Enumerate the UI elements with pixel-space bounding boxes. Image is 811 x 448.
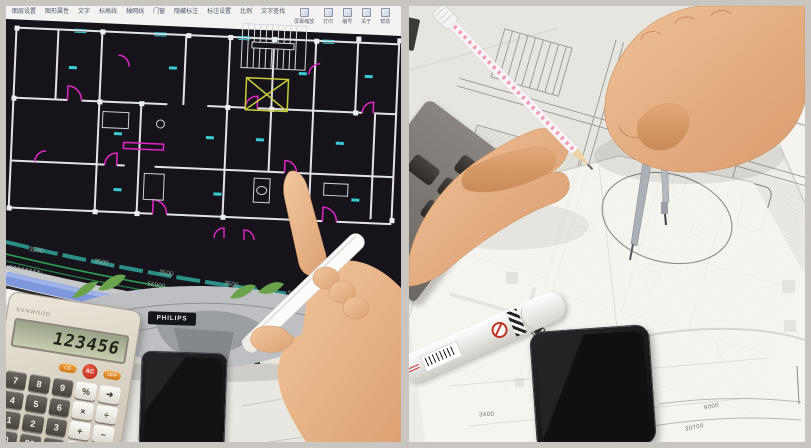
photo-collage: 图层设置 图形属性 文字 标高线 轴网线 门窗 隐藏标注 标注设置 比例 文字查… <box>0 0 811 448</box>
left-photo-cad-workstation: 图层设置 图形属性 文字 标高线 轴网线 门窗 隐藏标注 标注设置 比例 文字查… <box>6 6 401 442</box>
smartphone-screen <box>535 330 650 442</box>
smartphone[interactable] <box>529 324 657 442</box>
index-finger <box>284 171 327 276</box>
pointing-hand-with-pen <box>6 6 401 442</box>
right-photo-blueprint-drafting: 0 1 4 3400 9000 30700 <box>409 6 805 442</box>
